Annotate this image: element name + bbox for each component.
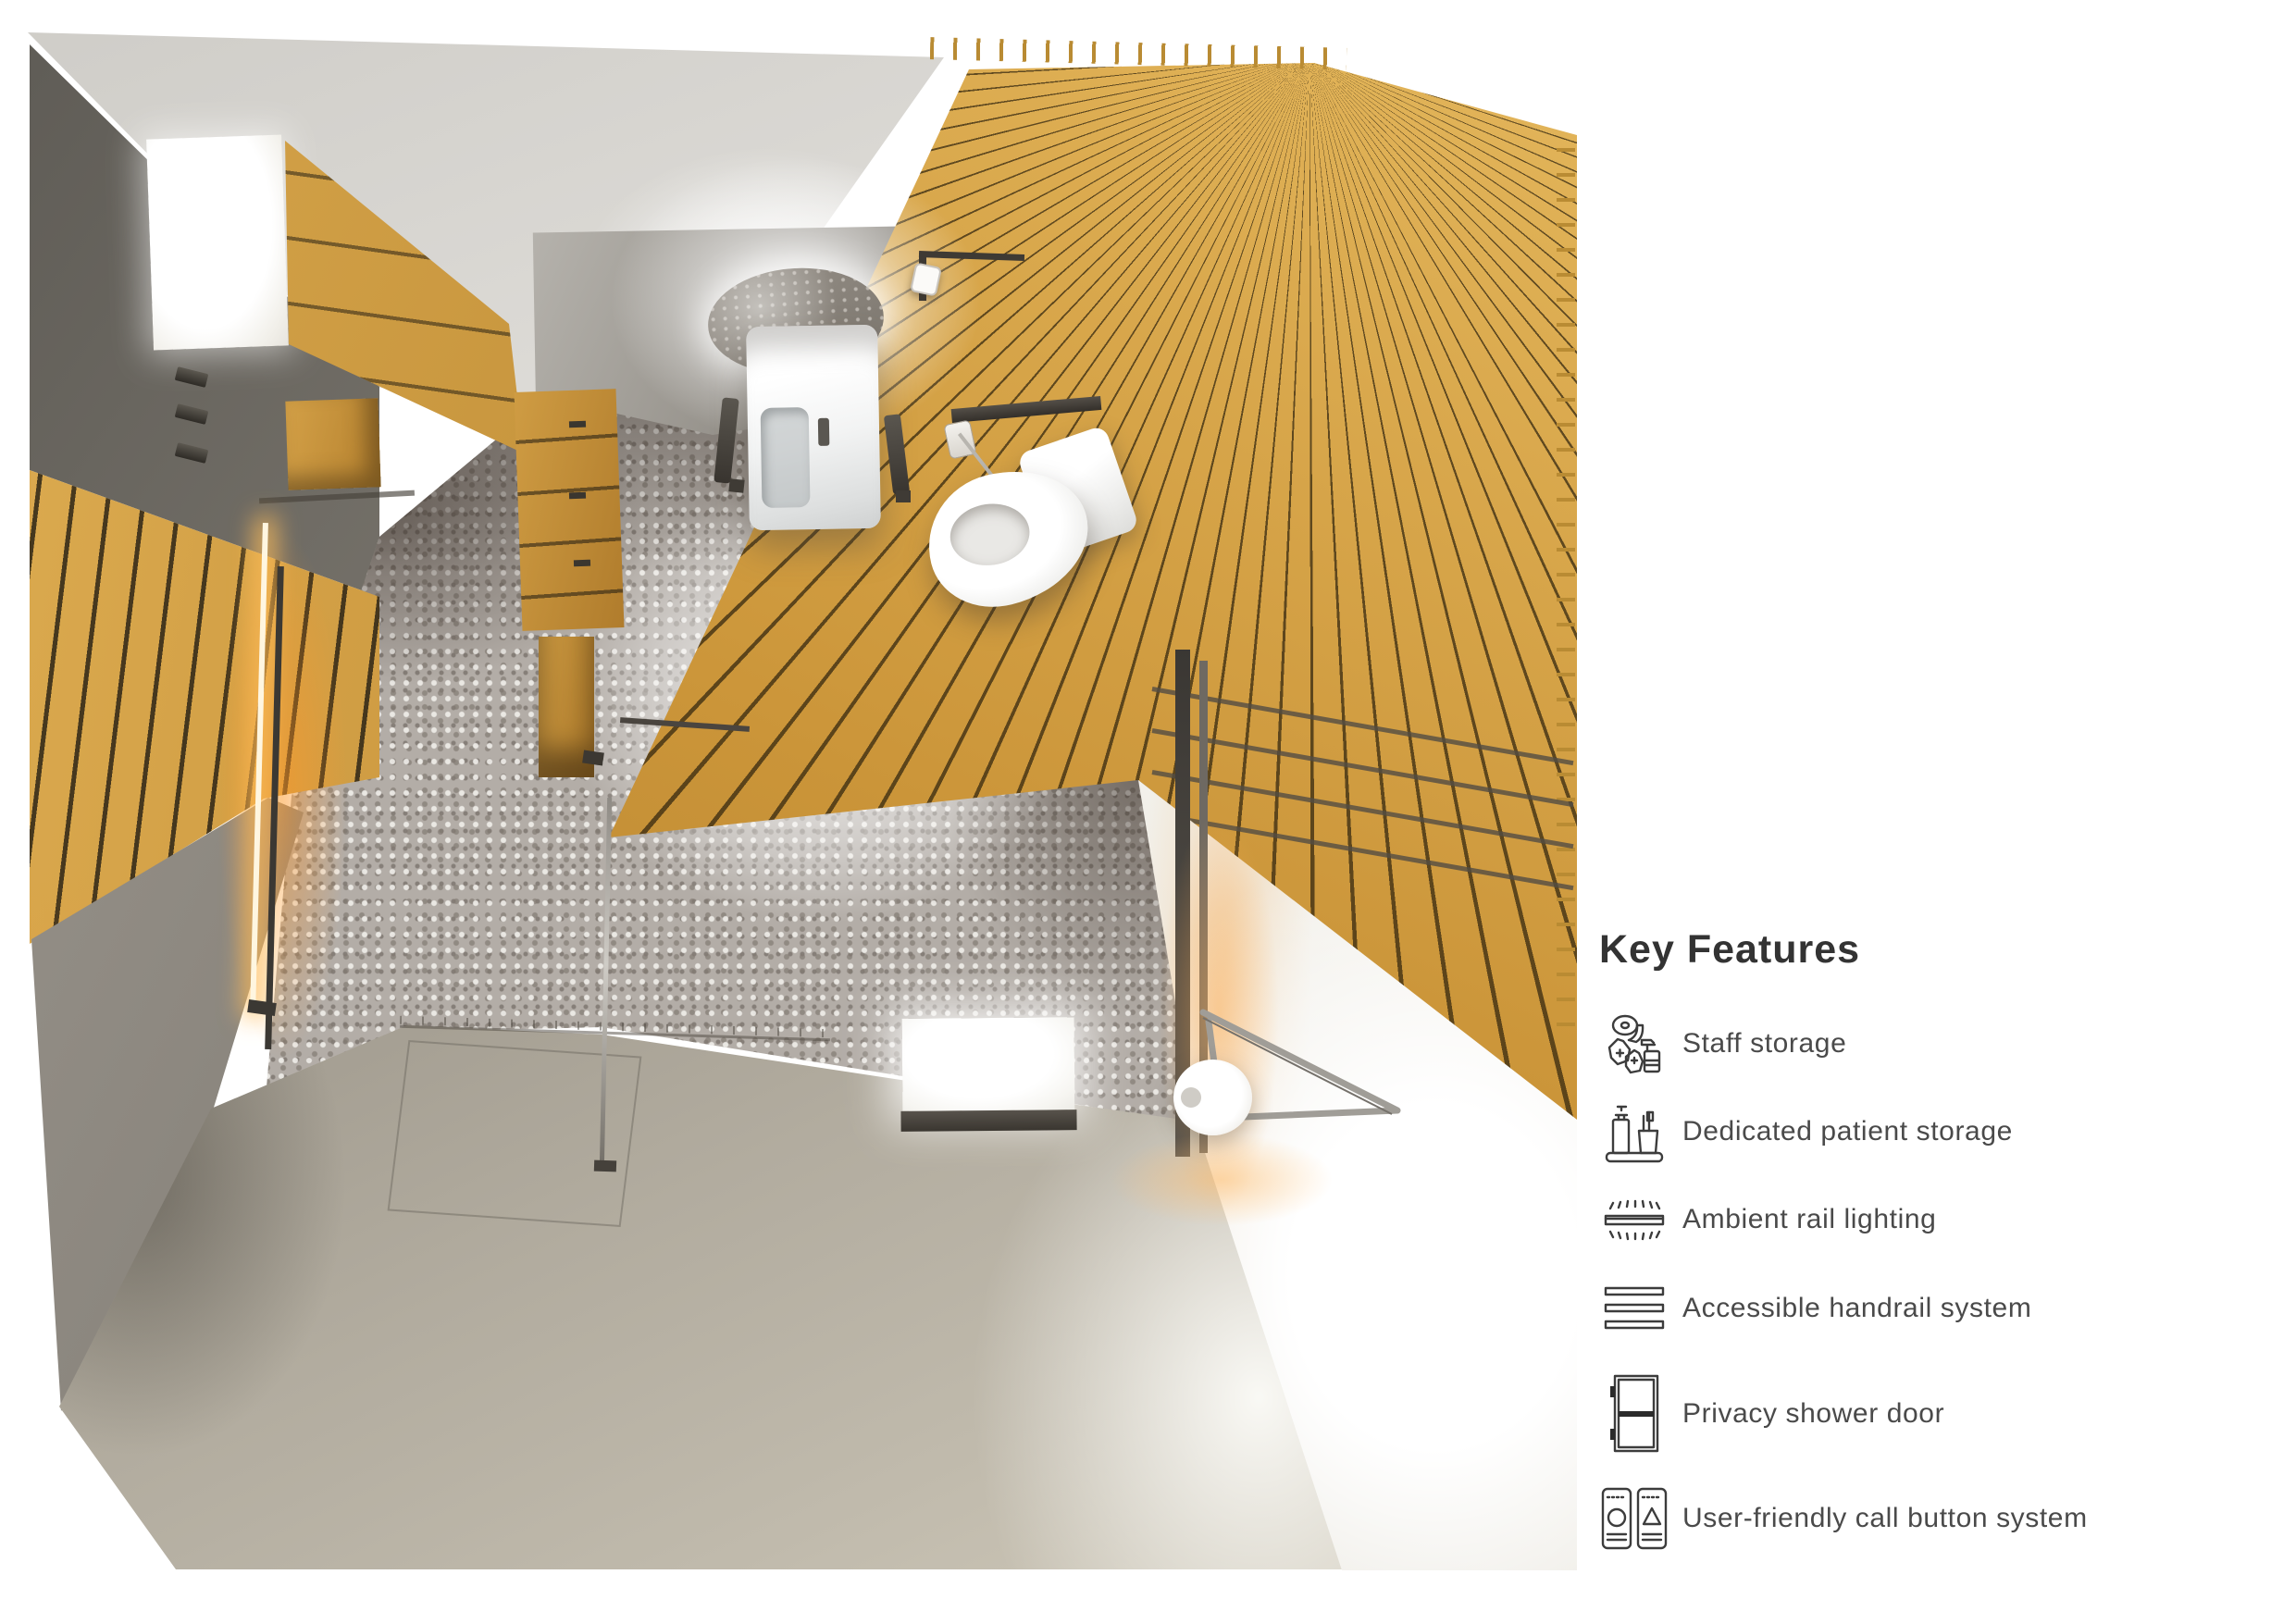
patient-storage-icon [1599, 1100, 1669, 1163]
sink-tap [818, 418, 830, 446]
drawer-handle-1 [569, 421, 586, 428]
toilet-paper-right [1173, 1060, 1252, 1135]
legend-item-label: Privacy shower door [1682, 1398, 1944, 1430]
ambient-rail-lighting-icon [1599, 1196, 1669, 1244]
privacy-shower-door-icon [1599, 1374, 1669, 1454]
legend-item-staff-storage: Staff storage [1599, 1001, 1846, 1086]
legend-item-ambient-rail-lighting: Ambient rail lighting [1599, 1177, 1936, 1262]
legend-item-label: Staff storage [1682, 1028, 1846, 1060]
drawer-handle-3 [574, 560, 590, 567]
shower-glass-foot [594, 1160, 616, 1172]
legend-item-accessible-handrail-system: Accessible handrail system [1599, 1266, 2031, 1351]
toilet-bowl-inner [946, 499, 1033, 570]
legend-item-label: Accessible handrail system [1682, 1293, 2031, 1324]
staff-cabinet-white [146, 135, 289, 351]
storage-box-plinth [900, 1110, 1076, 1132]
toilet-paper-core [1181, 1087, 1201, 1108]
sink-basin [746, 325, 881, 530]
staff-storage-icon [1599, 1012, 1669, 1075]
sink-bowl-shadow [761, 407, 811, 508]
page: Key Features Staff storageDedicated pati… [0, 0, 2296, 1624]
slat-tips-right [1557, 148, 1575, 1041]
key-features-legend: Key Features [1599, 924, 2275, 975]
bench-box [285, 398, 380, 490]
legend-item-label: Ambient rail lighting [1682, 1204, 1936, 1235]
legend-item-dedicated-patient-storage: Dedicated patient storage [1599, 1089, 2013, 1174]
legend-item-label: User-friendly call button system [1682, 1503, 2088, 1534]
legend-item-label: Dedicated patient storage [1682, 1116, 2013, 1147]
slat-tips-top [930, 37, 1347, 70]
drawer-handle-2 [569, 492, 586, 500]
sink-grab-bar-right-foot [896, 490, 911, 502]
legend-item-user-friendly-call-button-system: User-friendly call button system [1599, 1476, 2088, 1561]
accessible-handrail-icon [1599, 1285, 1669, 1332]
floor-storage-box [902, 1017, 1075, 1111]
sink-grab-bar-left-foot [728, 478, 744, 493]
call-button-icon [1599, 1487, 1669, 1550]
floor-warm-pool [1111, 1134, 1333, 1226]
bathroom-render [28, 19, 1582, 1573]
shelf-bracket [582, 750, 604, 766]
legend-title: Key Features [1599, 924, 2275, 975]
legend-item-privacy-shower-door: Privacy shower door [1599, 1371, 1944, 1457]
